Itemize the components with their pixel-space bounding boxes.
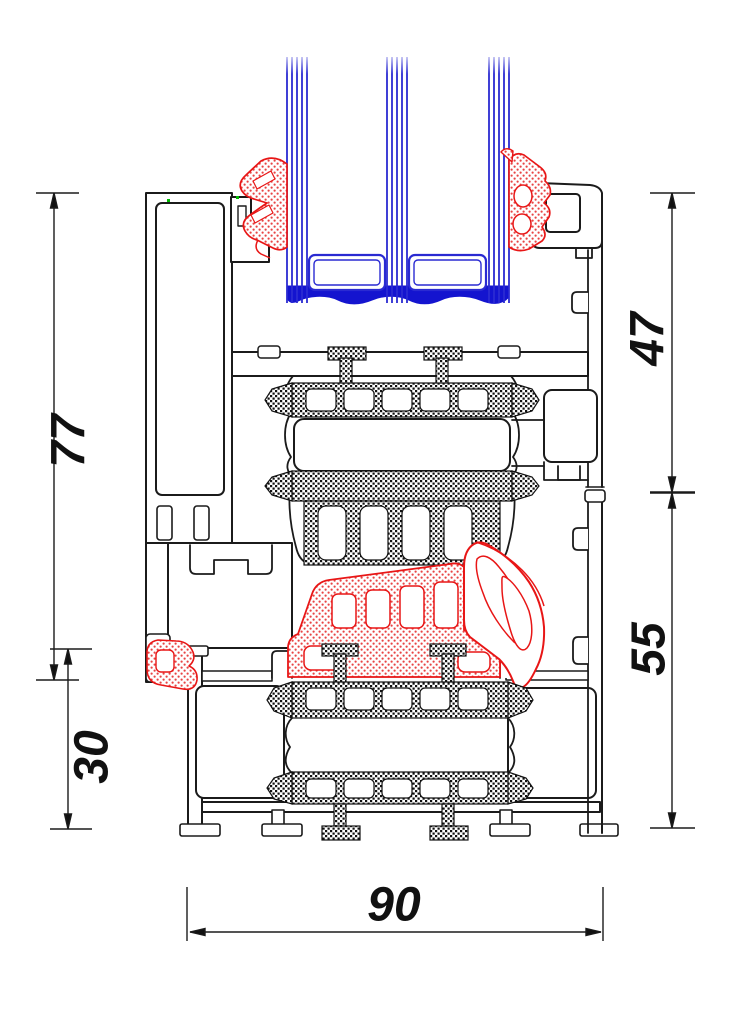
sash-floor	[232, 352, 588, 376]
dim-47: 47	[622, 193, 696, 492]
dim-77: 77	[36, 193, 96, 680]
dim-77-label: 77	[43, 412, 96, 468]
foot-gasket	[147, 640, 197, 689]
thermal-break-sash	[265, 347, 539, 565]
dim-47-label: 47	[622, 310, 675, 367]
dim-90: 90	[187, 879, 603, 942]
dim-55-label: 55	[623, 621, 676, 676]
profile-section-drawing: 77 30 47 55	[0, 0, 731, 1024]
sash-left-box	[146, 193, 232, 543]
snap-marker	[236, 196, 239, 199]
glazing-unit	[280, 50, 516, 304]
dim-55: 55	[623, 493, 696, 828]
snap-marker	[167, 199, 170, 202]
dim-30: 30	[50, 649, 119, 829]
glazing-gasket-right	[501, 149, 550, 251]
drawing-canvas: 77 30 47 55	[0, 0, 731, 1024]
dim-90-label: 90	[367, 879, 421, 932]
dim-30-label: 30	[66, 730, 119, 784]
sash-right-chamber	[544, 390, 597, 462]
